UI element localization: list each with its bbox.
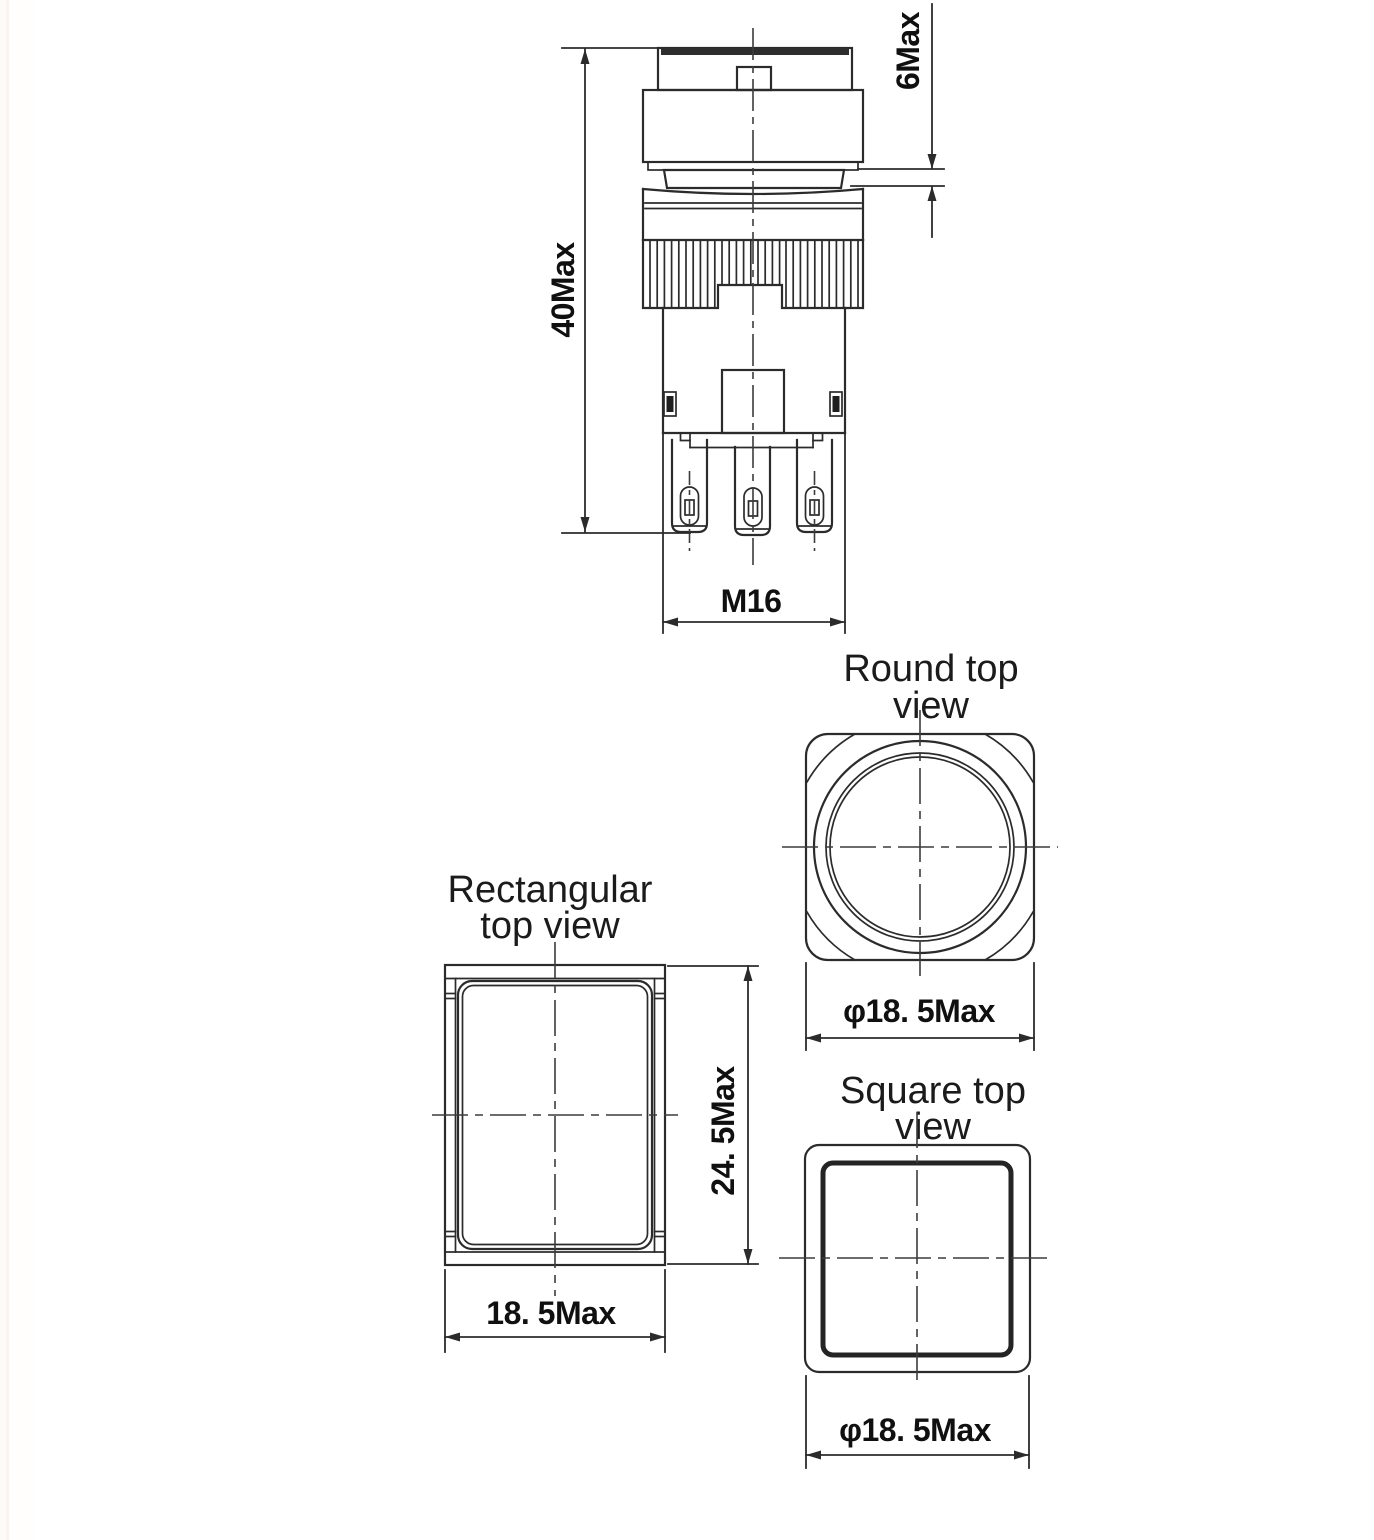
dim-40max: 40Max (545, 48, 690, 533)
square-top-view-title-line2: view (895, 1106, 972, 1148)
nut-knurling (650, 241, 858, 307)
arrow-left (806, 1034, 821, 1043)
pin-outline (672, 440, 707, 532)
arrow-left (663, 618, 678, 627)
arrow-right (1014, 1451, 1029, 1460)
dim-m16-label: M16 (721, 583, 782, 619)
dim-square-diameter-label: φ18. 5Max (839, 1412, 992, 1448)
flange-notch-right (813, 433, 823, 441)
latch-clip-right-fill (833, 396, 840, 412)
dim-rect-height: 24. 5Max (668, 966, 758, 1264)
cap-key-tab (737, 67, 771, 90)
dim-square-diameter: φ18. 5Max (806, 1376, 1029, 1468)
round-top-view-drawing: Round top view φ18. 5Max (782, 648, 1058, 1050)
dim-6max-label: 6Max (890, 11, 926, 90)
rect-top-view-title-line2: top view (480, 905, 620, 947)
dim-rect-height-label: 24. 5Max (705, 1066, 741, 1196)
terminal-pin-left (672, 440, 707, 551)
arrow-up (581, 49, 590, 64)
arrow-left (445, 1333, 460, 1342)
terminal-pin-right (797, 440, 832, 551)
rectangular-top-view-drawing: Rectangular top view 24. 5Max (432, 869, 758, 1352)
dim-rect-width-label: 18. 5Max (486, 1295, 616, 1331)
corner-arc-bottom-right (985, 912, 1033, 960)
latch-clip-left-fill (667, 396, 674, 412)
corner-arc-top-left (807, 734, 855, 782)
collar (664, 170, 844, 188)
dim-round-diameter: φ18. 5Max (806, 963, 1034, 1050)
round-top-view-title-line2: view (893, 685, 970, 727)
round-top-view-title-line1: Round top (843, 648, 1018, 690)
dim-6max: 6Max (851, 4, 944, 237)
flange-notch-left (681, 433, 691, 441)
corner-arc-top-right (985, 734, 1033, 782)
arrow-down (928, 154, 937, 169)
arrow-down (744, 1249, 753, 1264)
pushbutton-dimension-drawing: 40Max 6Max M16 Round top view (0, 0, 1374, 1540)
arrow-right (1019, 1034, 1034, 1043)
pin-outline (797, 440, 832, 532)
corner-arc-bottom-left (807, 912, 855, 960)
dim-round-diameter-label: φ18. 5Max (843, 993, 996, 1029)
arrow-right (650, 1333, 665, 1342)
arrow-down (581, 517, 590, 532)
side-view-drawing: 40Max 6Max M16 (545, 4, 944, 633)
square-top-view-drawing: Square top view φ18. 5Max (779, 1070, 1048, 1468)
arrow-up (744, 966, 753, 981)
arrow-right (830, 618, 845, 627)
dim-40max-label: 40Max (545, 242, 581, 338)
arrow-left (806, 1451, 821, 1460)
arrow-up (928, 186, 937, 201)
